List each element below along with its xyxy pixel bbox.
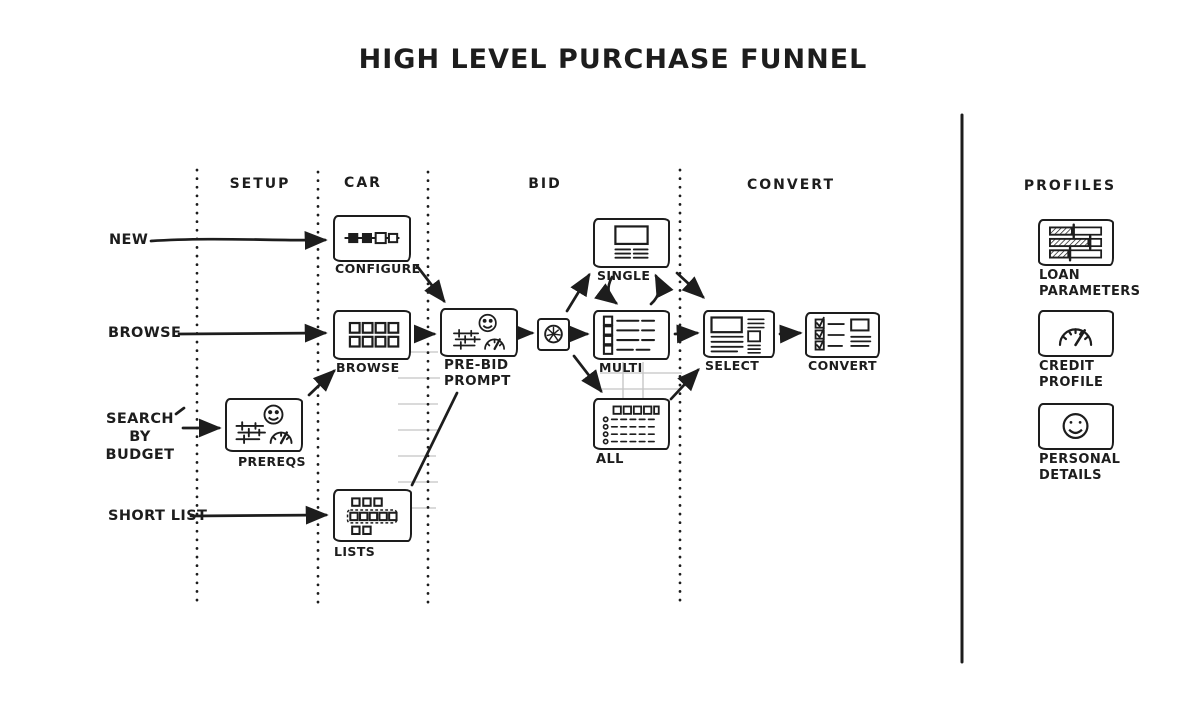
- profile-credit-profile: [1038, 310, 1114, 357]
- gauge-icon: [271, 433, 292, 443]
- single-listing-icon: [595, 220, 668, 266]
- node-single-label: SINGLE: [597, 269, 650, 284]
- arrow-select-to-convert: [780, 333, 800, 334]
- entry-search-by-budget: SEARCH BY BUDGET: [98, 410, 182, 464]
- arrow-multi-to-single: [651, 276, 659, 304]
- node-browse-label: BROWSE: [336, 361, 400, 376]
- prefs-smiley-gauge-icon: [442, 310, 516, 355]
- node-convert: [805, 312, 880, 358]
- convert-checkout-icon: [807, 314, 878, 356]
- profile-loan-parameters-label: LOAN PARAMETERS: [1039, 268, 1140, 300]
- profile-credit-profile-label: CREDIT PROFILE: [1039, 359, 1103, 391]
- all-table-icon: [595, 400, 668, 448]
- profiles-header: PROFILES: [1024, 178, 1116, 194]
- profile-loan-parameters: [1038, 219, 1114, 266]
- node-all: [593, 398, 670, 450]
- arrow-configure-to-prebid: [417, 266, 444, 301]
- arrow-all-to-select: [671, 370, 698, 399]
- smiley-icon: [264, 406, 282, 424]
- arrow-browse-to-browse-node: [179, 333, 325, 334]
- lists-icon: [335, 491, 410, 540]
- smiley-icon: [1040, 405, 1112, 448]
- node-prebid: [440, 308, 518, 357]
- node-lists: [333, 489, 412, 542]
- multi-checklist-icon: [595, 312, 668, 358]
- node-multi: [593, 310, 670, 360]
- entry-short-list: SHORT LIST: [108, 507, 207, 525]
- profile-personal-details-label: PERSONAL DETAILS: [1039, 452, 1120, 484]
- stepper-icon: [335, 217, 409, 260]
- arrow-prereqs-to-browse: [309, 371, 334, 395]
- node-select-label: SELECT: [705, 359, 759, 374]
- sliders-icon: [236, 422, 264, 443]
- node-prereqs-label: PREREQS: [238, 455, 306, 470]
- node-prereqs: [225, 398, 303, 452]
- smiley-icon: [479, 315, 495, 331]
- arrow-timer-to-all: [574, 356, 601, 391]
- node-configure: [333, 215, 411, 262]
- node-convert-label: CONVERT: [808, 359, 877, 374]
- node-prebid-label: PRE-BID PROMPT: [444, 358, 511, 390]
- arrow-new-to-configure: [151, 239, 325, 241]
- timer-icon: [539, 320, 568, 349]
- node-configure-label: CONFIGURE: [335, 262, 421, 277]
- node-single: [593, 218, 670, 268]
- node-bid-timer: [537, 318, 570, 351]
- thumbnail-grid-icon: [335, 312, 409, 358]
- gauge-icon: [485, 339, 504, 349]
- column-header-bid: BID: [528, 176, 562, 192]
- node-lists-label: LISTS: [334, 545, 375, 560]
- entry-new: NEW: [109, 231, 148, 249]
- arrow-multi-to-select: [675, 333, 697, 334]
- select-layout-icon: [705, 312, 773, 356]
- entry-browse: BROWSE: [108, 324, 181, 342]
- line-lists-to-prebid: [412, 393, 457, 485]
- profile-personal-details: [1038, 403, 1114, 450]
- column-header-convert: CONVERT: [747, 177, 835, 193]
- purchase-funnel-sketch: HIGH LEVEL PURCHASE FUNNEL SETUP CAR BID…: [0, 0, 1200, 720]
- column-header-setup: SETUP: [230, 176, 291, 192]
- node-all-label: ALL: [596, 452, 624, 467]
- node-browse: [333, 310, 411, 360]
- node-select: [703, 310, 775, 358]
- sliders-icon: [454, 330, 480, 349]
- gauge-icon: [1040, 312, 1112, 355]
- arrow-shortlist-to-lists: [191, 515, 326, 516]
- loan-sliders-icon: [1040, 221, 1112, 264]
- column-header-car: CAR: [344, 175, 382, 191]
- node-multi-label: MULTI: [599, 361, 643, 376]
- arrow-timer-to-single: [567, 275, 589, 311]
- prefs-smiley-gauge-icon: [227, 400, 301, 450]
- page-title: HIGH LEVEL PURCHASE FUNNEL: [359, 44, 868, 75]
- arrow-single-to-select: [677, 273, 703, 297]
